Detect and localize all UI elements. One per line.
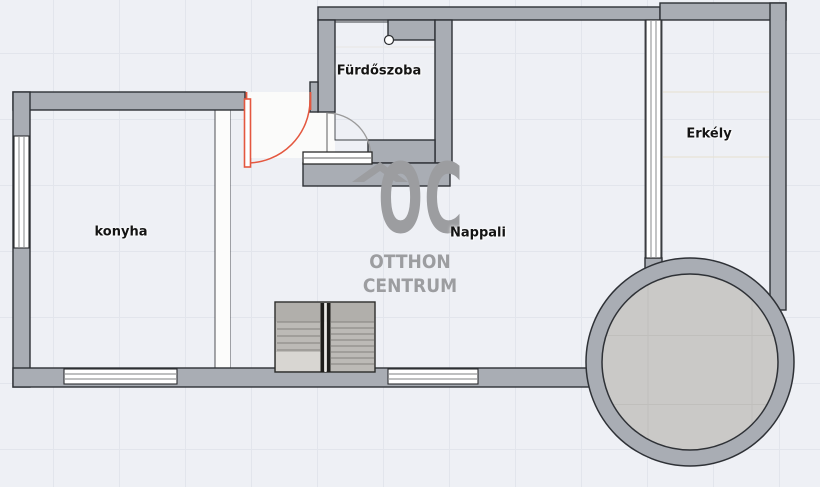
room-label-erkely: Erkély: [686, 127, 731, 142]
kitchen-bottom-window: [64, 369, 177, 384]
living-bottom-window: [388, 369, 478, 384]
room-label-nappali: Nappali: [450, 226, 506, 241]
floor-plan: OC OTTHON CENTRUM Fürdőszoba konyha Napp…: [0, 0, 820, 487]
kitchen-left-window: [14, 136, 29, 248]
room-label-furdoszoba: Fürdőszoba: [337, 64, 421, 79]
stair-railing: [321, 303, 325, 372]
bathroom-threshold: [303, 152, 372, 164]
balcony-window-strip: [646, 20, 661, 258]
stairs: [275, 302, 375, 372]
room-label-konyha: konyha: [95, 225, 148, 240]
kitchen-partition-strip: [215, 110, 230, 368]
turret-bay: [586, 258, 794, 466]
bathroom-corner-fixture: [385, 36, 394, 45]
